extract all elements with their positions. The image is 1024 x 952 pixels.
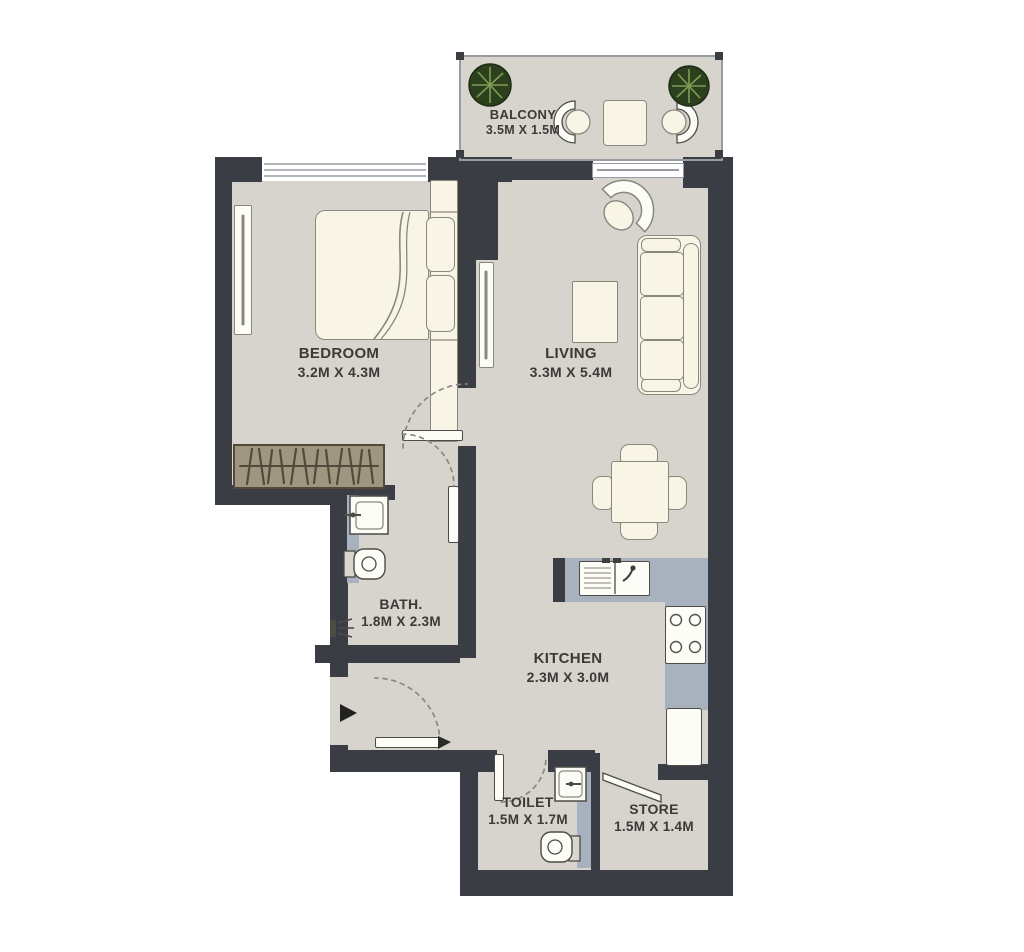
room-name: KITCHEN	[527, 650, 610, 669]
room-dims: 2.3M X 3.0M	[527, 669, 610, 687]
bedroom-label: BEDROOM 3.2M X 4.3M	[298, 345, 381, 381]
kitchen-label: KITCHEN 2.3M X 3.0M	[527, 650, 610, 686]
sofa-armrest	[641, 378, 681, 392]
sofa-back	[683, 243, 699, 389]
wall-segment	[591, 753, 600, 875]
wall-segment	[315, 645, 460, 663]
wardrobe	[233, 444, 385, 489]
fridge	[666, 708, 702, 766]
sofa-seat	[640, 252, 684, 296]
coffee-table	[572, 281, 618, 343]
wall-segment	[548, 750, 595, 772]
room-name: BEDROOM	[298, 345, 381, 364]
balcony-label: BALCONY 3.5M X 1.5M	[486, 107, 560, 139]
wall-segment	[458, 260, 476, 388]
wall-segment	[458, 180, 498, 260]
living-radiator	[479, 262, 494, 368]
room-name: BALCONY	[486, 107, 560, 123]
balcony-table	[603, 100, 647, 146]
railing-post	[456, 52, 464, 60]
bed	[315, 210, 429, 340]
wall-segment	[708, 184, 733, 894]
room-dims: 3.5M X 1.5M	[486, 123, 560, 139]
dining-chair	[592, 476, 612, 510]
railing-post	[715, 150, 723, 158]
toilet-label: TOILET 1.5M X 1.7M	[488, 794, 568, 828]
room-dims: 3.3M X 5.4M	[530, 364, 613, 382]
wall-segment	[215, 157, 232, 505]
store-label: STORE 1.5M X 1.4M	[614, 801, 694, 835]
room-dims: 1.5M X 1.7M	[488, 812, 568, 829]
balcony-sliding-door	[592, 163, 684, 178]
room-name: STORE	[614, 801, 694, 819]
wall-segment	[658, 764, 708, 780]
bath-label: BATH. 1.8M X 2.3M	[361, 596, 441, 630]
floor-plan: BALCONY 3.5M X 1.5M BEDROOM 3.2M X 4.3M …	[0, 0, 1024, 952]
bedroom-radiator	[234, 205, 252, 335]
room-name: LIVING	[530, 345, 613, 364]
kitchen-sink	[579, 561, 650, 596]
sofa-armrest	[641, 238, 681, 252]
sofa-seat	[640, 296, 684, 340]
stove	[665, 606, 706, 664]
dining-chair	[667, 476, 687, 510]
bedroom-window	[262, 158, 428, 181]
wall-segment	[460, 870, 733, 896]
railing-post	[456, 150, 464, 158]
room-name: BATH.	[361, 596, 441, 614]
pillow	[426, 275, 455, 332]
room-dims: 1.8M X 2.3M	[361, 614, 441, 631]
entry-arrow-icon	[340, 704, 357, 722]
wall-segment	[512, 159, 593, 180]
sofa-seat	[640, 340, 684, 380]
room-dims: 1.5M X 1.4M	[614, 819, 694, 836]
living-label: LIVING 3.3M X 5.4M	[530, 345, 613, 381]
door-leaf	[375, 737, 440, 748]
room-name: TOILET	[488, 794, 568, 812]
railing-post	[715, 52, 723, 60]
dining-chair	[620, 521, 658, 540]
counter-end-panel	[553, 558, 565, 602]
door-leaf	[448, 486, 459, 543]
wall-segment	[458, 446, 476, 658]
pillow	[426, 217, 455, 272]
dining-table	[611, 461, 669, 523]
wall-segment	[330, 745, 348, 772]
door-leaf	[402, 430, 463, 441]
room-dims: 3.2M X 4.3M	[298, 364, 381, 382]
